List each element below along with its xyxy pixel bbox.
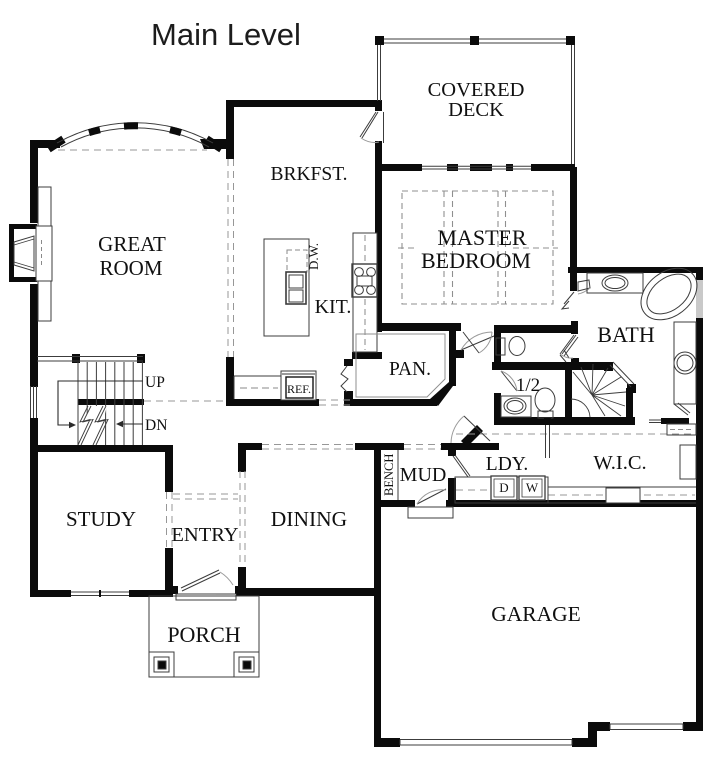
svg-text:DINING: DINING <box>271 507 347 531</box>
svg-text:GARAGE: GARAGE <box>491 602 581 626</box>
svg-text:W: W <box>526 480 539 495</box>
svg-text:UP: UP <box>145 374 165 391</box>
svg-text:D.W.: D.W. <box>306 243 321 270</box>
svg-text:W.I.C.: W.I.C. <box>593 452 646 474</box>
svg-text:ROOM: ROOM <box>99 256 162 280</box>
svg-text:REF.: REF. <box>287 382 311 396</box>
svg-text:MUD: MUD <box>400 464 447 486</box>
svg-text:LDY.: LDY. <box>486 454 528 475</box>
svg-text:D: D <box>499 480 508 495</box>
svg-text:DECK: DECK <box>448 99 504 121</box>
svg-text:STUDY: STUDY <box>66 507 136 531</box>
svg-text:COVERED: COVERED <box>428 79 525 101</box>
svg-text:BRKFST.: BRKFST. <box>270 164 347 185</box>
svg-text:BATH: BATH <box>597 322 655 347</box>
svg-text:ENTRY: ENTRY <box>171 524 238 546</box>
svg-text:MASTER: MASTER <box>437 225 527 250</box>
svg-text:GREAT: GREAT <box>98 232 166 256</box>
svg-text:1/2: 1/2 <box>516 375 540 396</box>
svg-text:DN: DN <box>145 417 167 434</box>
svg-text:PAN.: PAN. <box>389 359 431 380</box>
svg-text:KIT.: KIT. <box>315 296 352 318</box>
svg-text:Main Level: Main Level <box>151 17 301 52</box>
svg-text:BEDROOM: BEDROOM <box>421 248 531 273</box>
svg-text:BENCH: BENCH <box>382 454 396 496</box>
svg-text:PORCH: PORCH <box>167 622 240 647</box>
